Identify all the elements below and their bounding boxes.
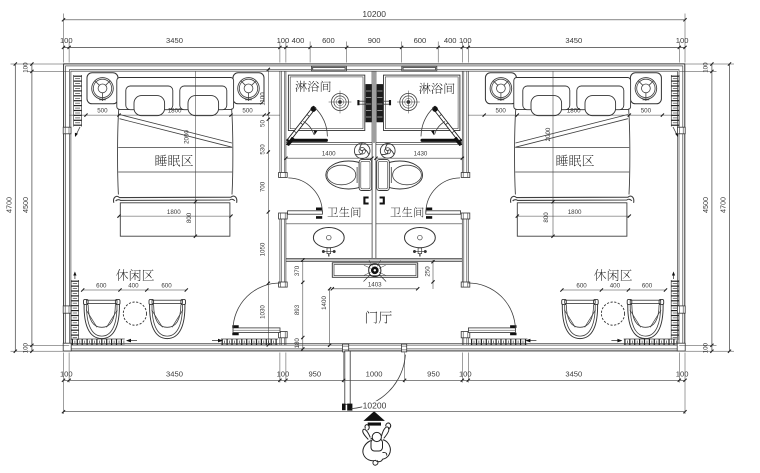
svg-text:10200: 10200 — [363, 401, 387, 411]
svg-text:50: 50 — [260, 120, 267, 127]
svg-text:500: 500 — [242, 108, 253, 115]
svg-text:100: 100 — [23, 342, 30, 353]
svg-text:10200: 10200 — [362, 9, 386, 19]
svg-text:100: 100 — [676, 369, 689, 378]
svg-text:600: 600 — [96, 282, 107, 289]
svg-text:900: 900 — [368, 36, 381, 45]
svg-text:2000: 2000 — [545, 127, 552, 141]
svg-text:500: 500 — [641, 108, 652, 115]
svg-text:100: 100 — [703, 62, 710, 73]
svg-text:3450: 3450 — [166, 36, 183, 45]
svg-text:1800: 1800 — [168, 108, 182, 115]
svg-text:400: 400 — [610, 282, 621, 289]
svg-text:250: 250 — [424, 266, 431, 277]
svg-text:100: 100 — [676, 36, 689, 45]
svg-text:1400: 1400 — [322, 151, 336, 158]
svg-text:4700: 4700 — [719, 197, 728, 213]
svg-text:950: 950 — [427, 369, 440, 378]
svg-text:1030: 1030 — [260, 305, 267, 319]
svg-text:600: 600 — [161, 282, 172, 289]
svg-text:400: 400 — [444, 36, 457, 45]
svg-text:500: 500 — [97, 108, 108, 115]
svg-text:600: 600 — [576, 282, 587, 289]
svg-text:600: 600 — [642, 282, 653, 289]
svg-text:1430: 1430 — [414, 151, 428, 158]
svg-text:1050: 1050 — [260, 242, 267, 256]
svg-text:530: 530 — [260, 144, 267, 155]
svg-text:400: 400 — [292, 36, 305, 45]
svg-text:500: 500 — [496, 108, 507, 115]
svg-text:100: 100 — [703, 342, 710, 353]
svg-text:180: 180 — [294, 338, 301, 349]
svg-text:600: 600 — [322, 36, 335, 45]
svg-text:1403: 1403 — [368, 282, 382, 289]
svg-text:700: 700 — [260, 181, 267, 192]
svg-text:100: 100 — [60, 369, 73, 378]
svg-text:100: 100 — [60, 36, 73, 45]
svg-text:100: 100 — [277, 369, 290, 378]
svg-text:950: 950 — [308, 369, 321, 378]
svg-text:4500: 4500 — [701, 197, 710, 213]
svg-text:3450: 3450 — [565, 369, 582, 378]
svg-text:1800: 1800 — [567, 108, 581, 115]
svg-text:100: 100 — [459, 369, 472, 378]
svg-text:4700: 4700 — [5, 197, 14, 213]
svg-text:1100: 1100 — [260, 92, 267, 106]
svg-text:3450: 3450 — [565, 36, 582, 45]
svg-text:1000: 1000 — [366, 369, 383, 378]
svg-text:4500: 4500 — [21, 197, 30, 213]
svg-text:800: 800 — [543, 212, 550, 223]
svg-text:370: 370 — [294, 265, 301, 276]
svg-text:100: 100 — [23, 62, 30, 73]
svg-text:100: 100 — [459, 36, 472, 45]
svg-text:3450: 3450 — [166, 369, 183, 378]
svg-text:893: 893 — [294, 304, 301, 315]
svg-text:1800: 1800 — [568, 209, 582, 216]
svg-text:400: 400 — [128, 282, 139, 289]
svg-text:600: 600 — [414, 36, 427, 45]
svg-text:2000: 2000 — [184, 130, 191, 144]
svg-text:100: 100 — [277, 36, 290, 45]
svg-text:1800: 1800 — [167, 209, 181, 216]
svg-text:800: 800 — [186, 212, 193, 223]
svg-text:1400: 1400 — [321, 296, 328, 310]
